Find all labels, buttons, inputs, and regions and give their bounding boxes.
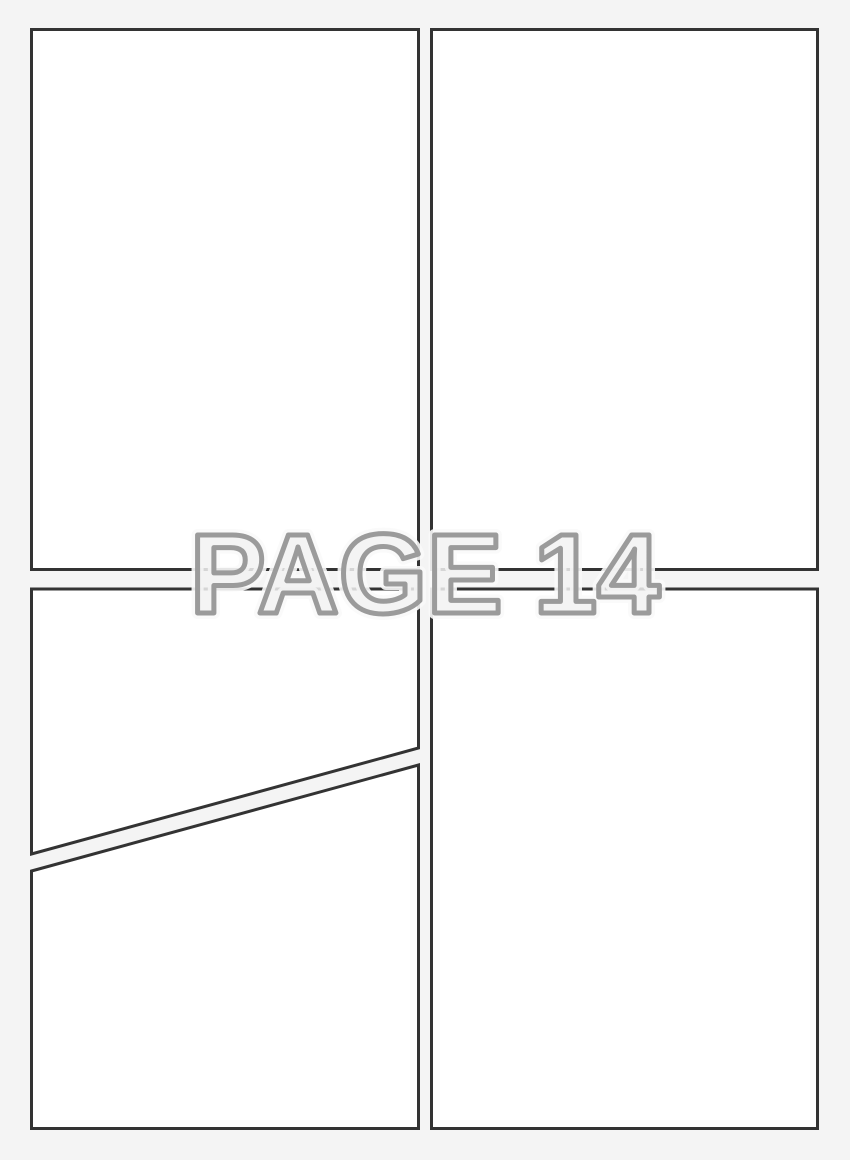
comic-page-template: PAGE 14 PAGE 14: [0, 0, 850, 1160]
page-number-watermark: PAGE 14 PAGE 14: [190, 511, 660, 637]
panel-top-right: [432, 30, 818, 570]
panel-top-left: [32, 30, 419, 570]
watermark-text: PAGE 14: [190, 511, 660, 637]
comic-page-canvas: PAGE 14 PAGE 14: [0, 0, 850, 1160]
panel-bottom-right: [432, 589, 818, 1129]
